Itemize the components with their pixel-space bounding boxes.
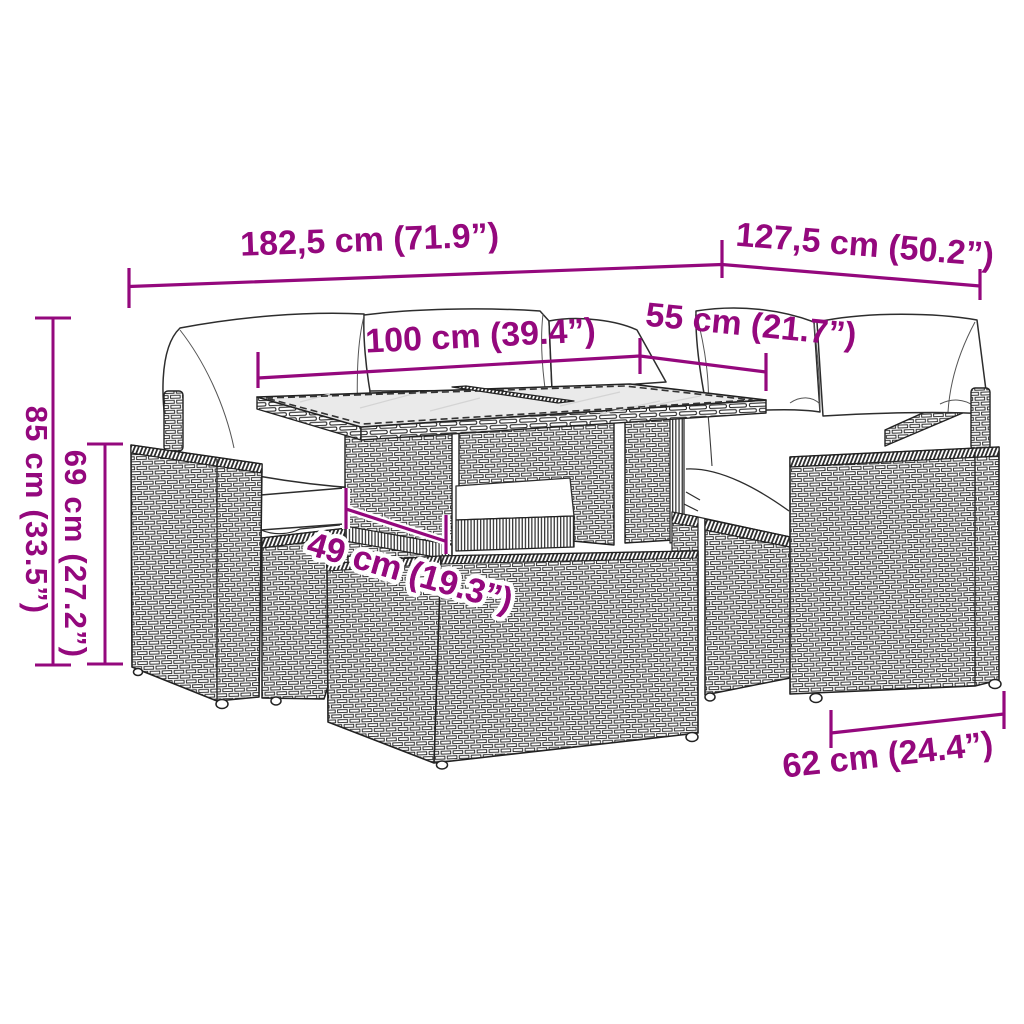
svg-text:69 cm (27.2”): 69 cm (27.2”) bbox=[58, 450, 93, 659]
svg-text:85 cm (33.5”): 85 cm (33.5”) bbox=[19, 406, 54, 615]
